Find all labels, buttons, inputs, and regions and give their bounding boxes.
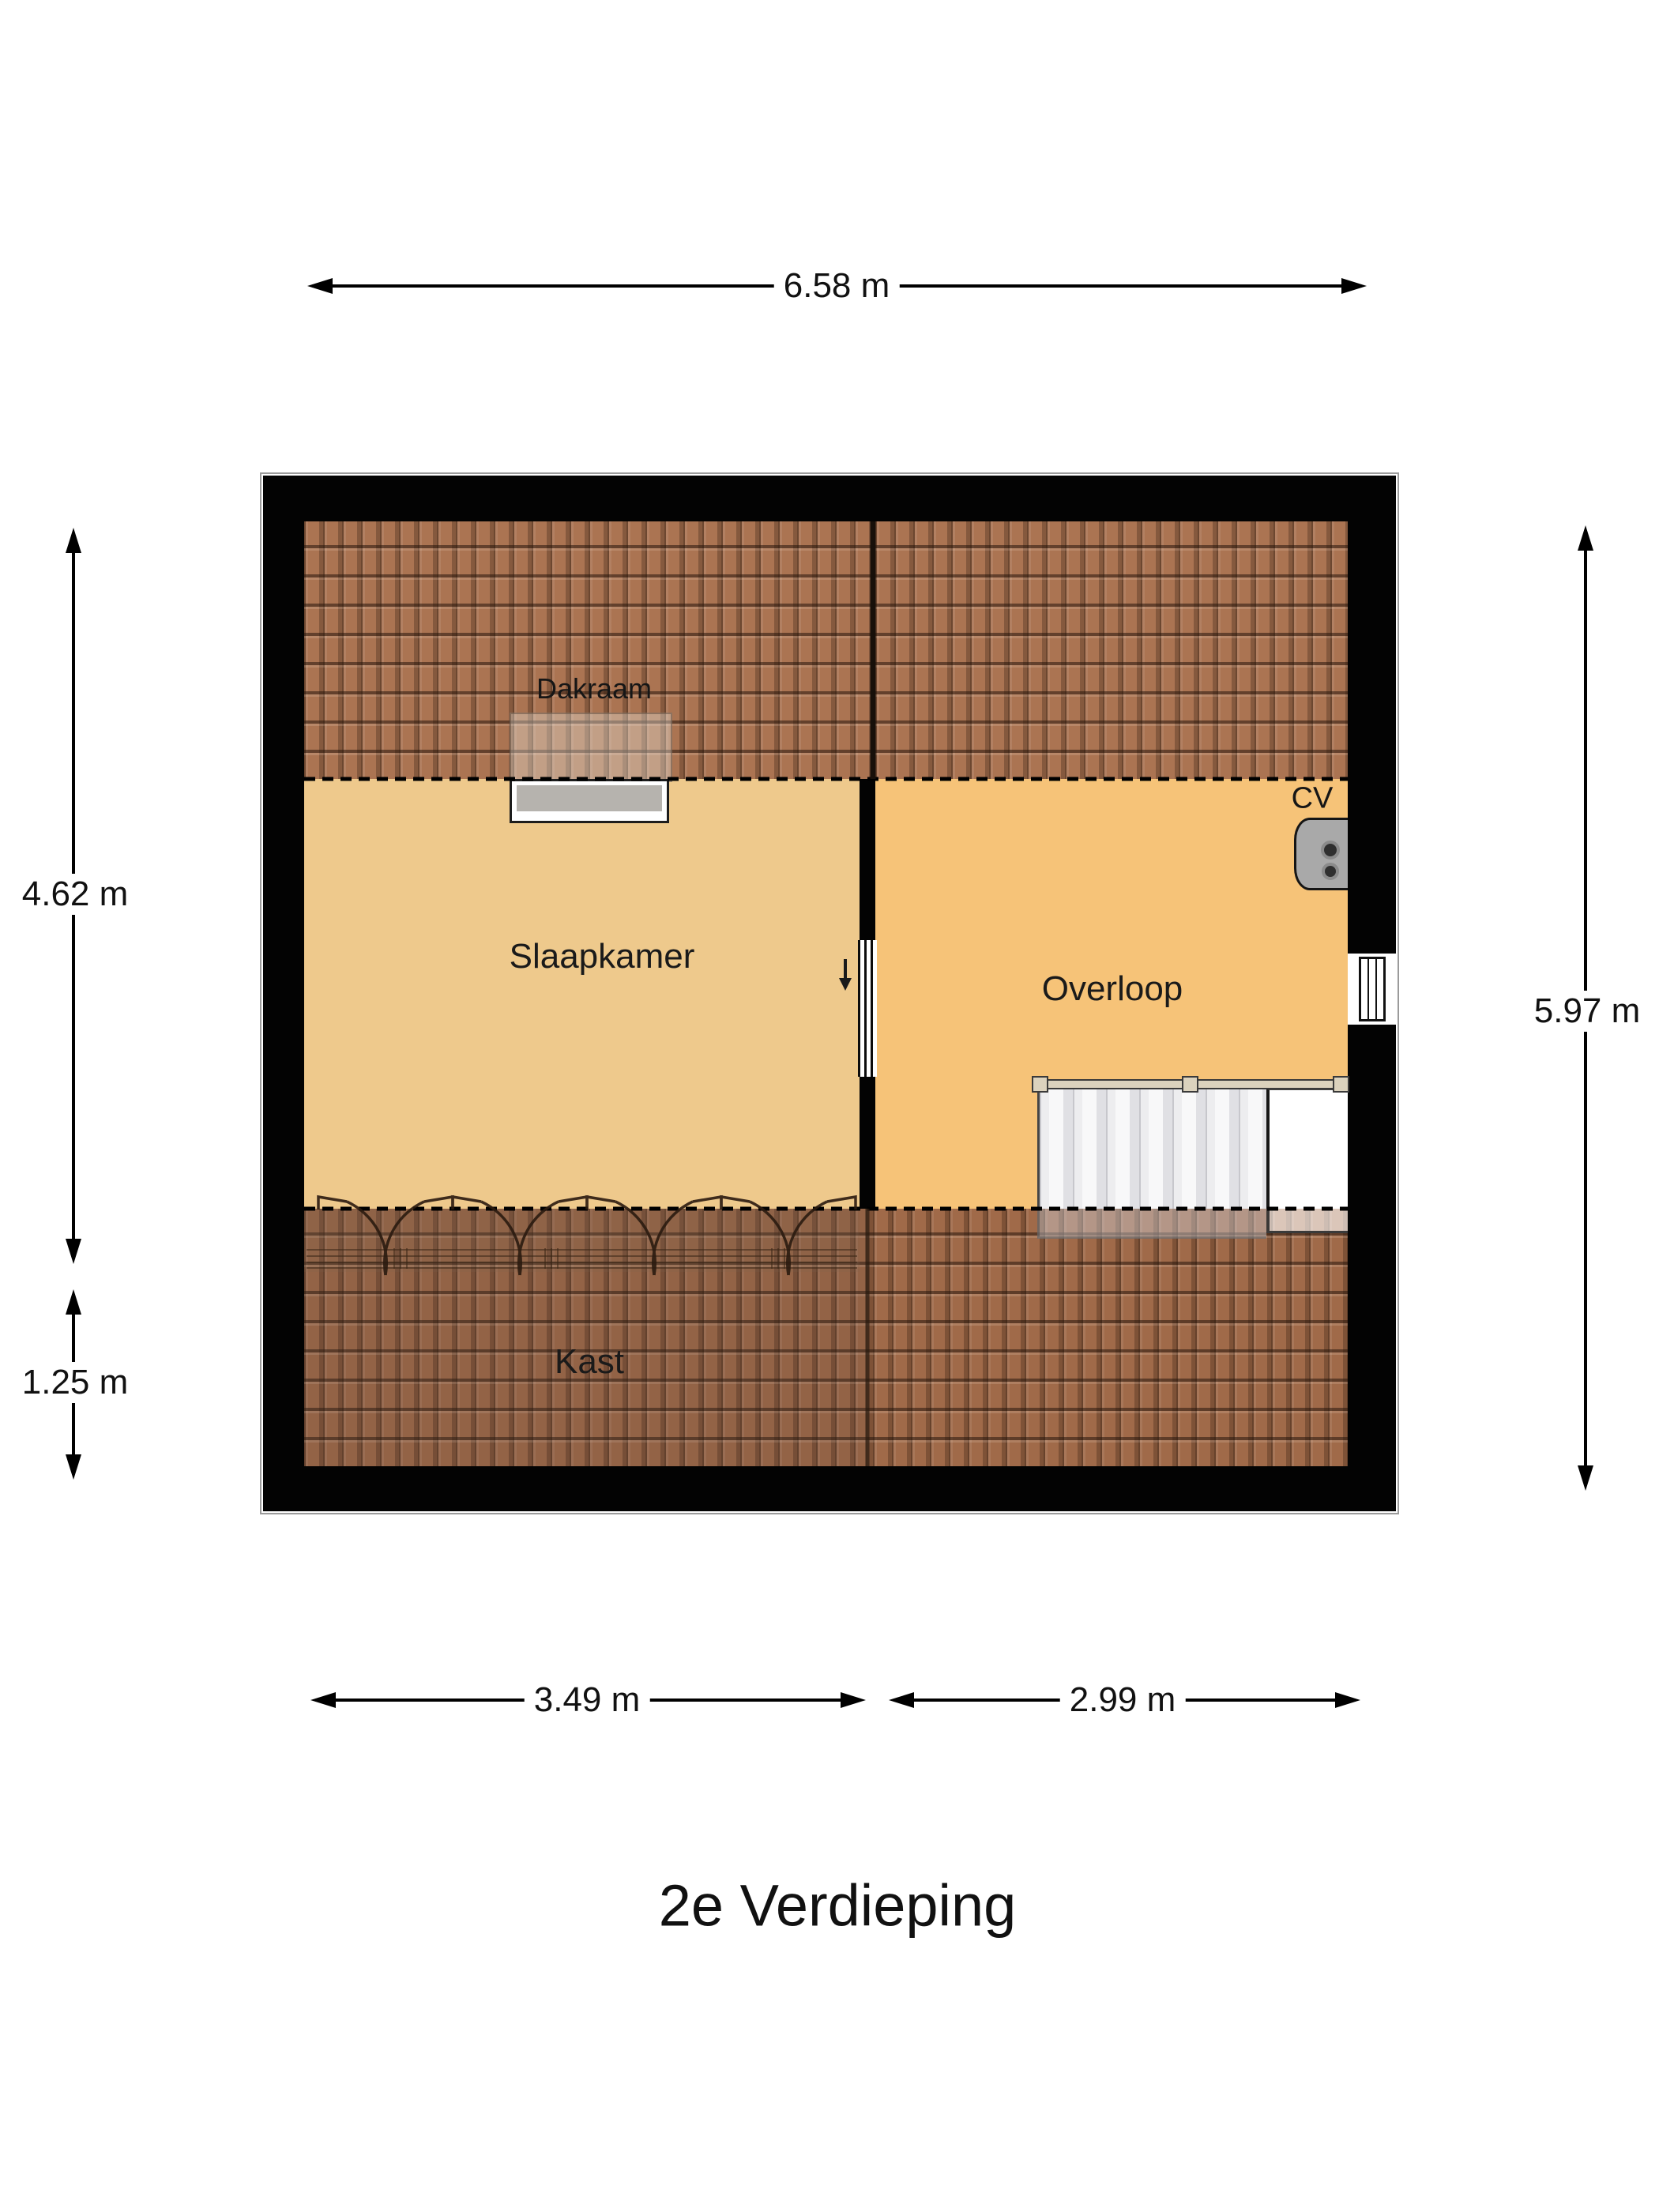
dimension-label-top: 6.58 m	[774, 265, 900, 307]
page-title: 2e Verdieping	[659, 1872, 1017, 1939]
dimension-label-bottom-right: 2.99 m	[1060, 1680, 1186, 1721]
kast-shelf-lines	[307, 1248, 857, 1269]
dimension-label-right: 5.97 m	[1525, 991, 1650, 1032]
room-label-overloop: Overloop	[1042, 969, 1183, 1009]
floor-plan: Dakraam CV Slaapkamer Overloop Kast 6.58…	[0, 0, 1659, 2212]
room-label-kast: Kast	[555, 1342, 624, 1382]
door-direction-arrow	[839, 959, 852, 991]
dakraam-label: Dakraam	[536, 672, 652, 705]
dimension-label-bottom-left: 3.49 m	[525, 1680, 650, 1721]
cv-label: CV	[1292, 782, 1334, 816]
room-label-slaapkamer: Slaapkamer	[510, 937, 695, 976]
dimension-label-left-lower: 1.25 m	[13, 1362, 138, 1403]
dimension-label-left-upper: 4.62 m	[13, 874, 138, 915]
